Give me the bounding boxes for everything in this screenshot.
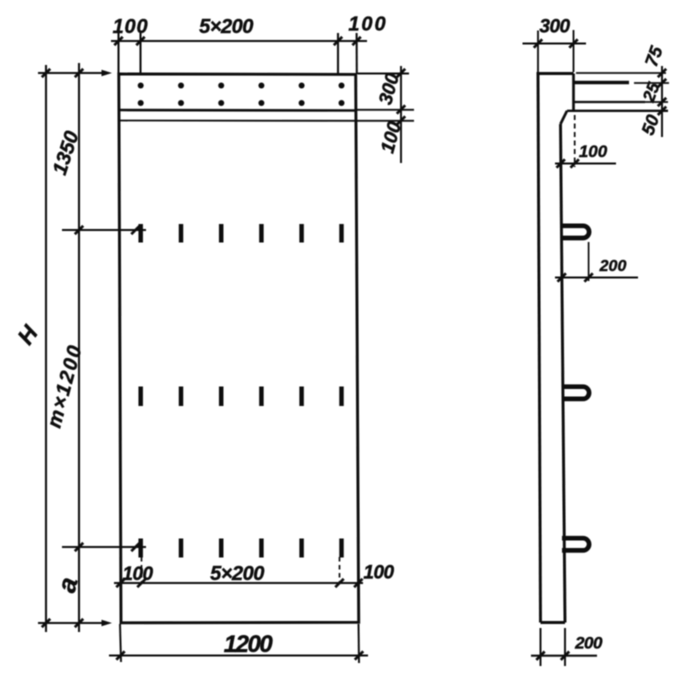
svg-text:300: 300	[539, 17, 570, 38]
svg-text:100: 100	[579, 142, 608, 161]
svg-text:H: H	[12, 320, 43, 349]
svg-text:5×200: 5×200	[199, 16, 253, 38]
svg-text:100: 100	[122, 564, 153, 585]
svg-text:300: 300	[375, 71, 404, 107]
svg-text:75: 75	[641, 43, 667, 70]
svg-text:200: 200	[574, 634, 603, 653]
svg-text:100: 100	[363, 563, 394, 584]
svg-text:5×200: 5×200	[210, 563, 264, 585]
svg-text:m×1200: m×1200	[43, 342, 87, 431]
svg-text:100: 100	[348, 14, 387, 36]
svg-text:200: 200	[599, 258, 627, 275]
svg-text:100: 100	[113, 16, 149, 38]
svg-text:50: 50	[638, 112, 664, 138]
svg-text:1200: 1200	[224, 631, 274, 658]
